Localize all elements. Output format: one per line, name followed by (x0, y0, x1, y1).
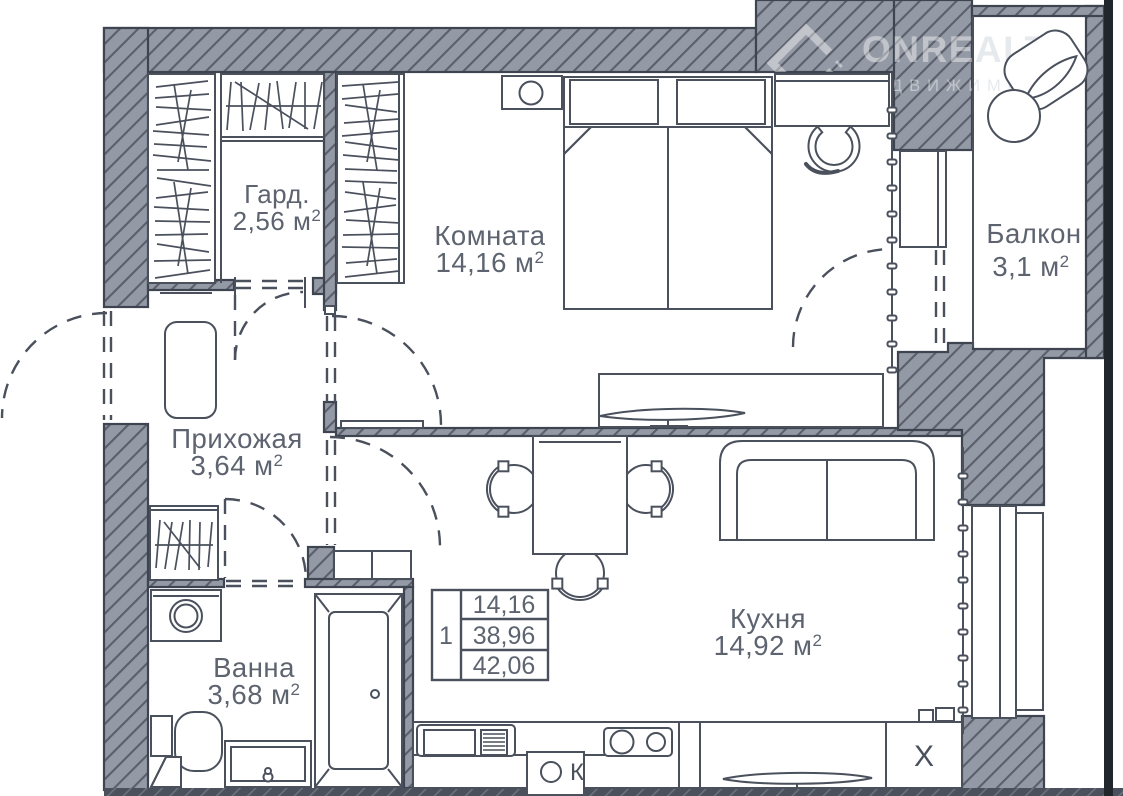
svg-text:3,64 м2: 3,64 м2 (190, 450, 283, 481)
svg-text:14,16 м2: 14,16 м2 (436, 247, 545, 278)
svg-text:К: К (570, 759, 584, 786)
svg-text:3,68 м2: 3,68 м2 (207, 679, 300, 710)
svg-text:42,06: 42,06 (473, 652, 536, 680)
svg-text:2,56 м2: 2,56 м2 (233, 206, 322, 236)
svg-text:38,96: 38,96 (473, 622, 536, 650)
svg-text:14,92 м2: 14,92 м2 (714, 630, 823, 661)
svg-text:X: X (914, 740, 934, 773)
svg-text:Балкон: Балкон (986, 218, 1081, 249)
svg-text:Гард.: Гард. (244, 179, 310, 209)
svg-text:3,1 м2: 3,1 м2 (992, 251, 1069, 282)
svg-text:1: 1 (439, 622, 453, 650)
svg-text:14,16: 14,16 (473, 591, 536, 619)
